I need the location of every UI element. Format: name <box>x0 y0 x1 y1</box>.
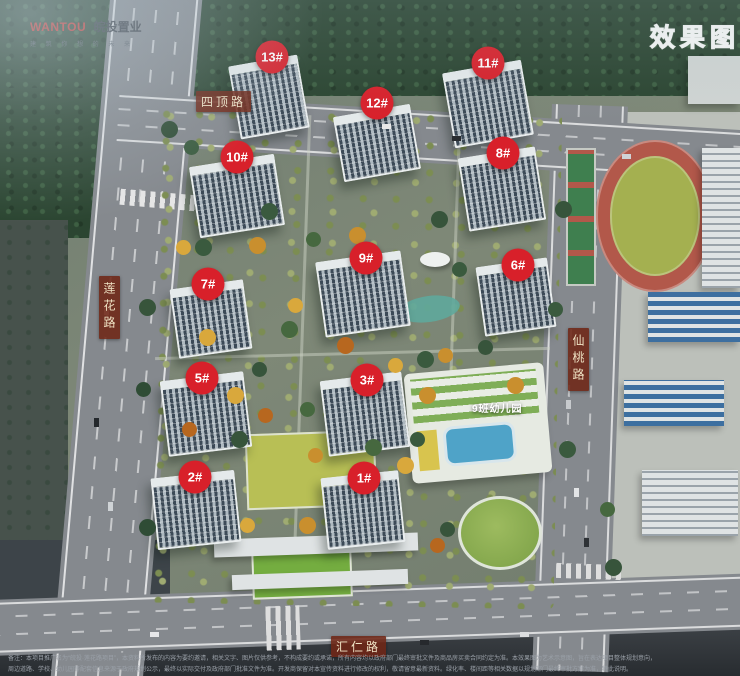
building-marker-10: 10# <box>221 141 254 174</box>
kindergarten-building <box>403 362 552 484</box>
disclaimer-line-2: 周边道路、学校、幼儿园等配套信息来源于政府规划公示，最终以实际交付及政府部门批准… <box>8 664 734 673</box>
disclaimer-line-1: 备注：本项目推广名为“皖投·莲花路项目”，本资料所发布的内容为要约邀请，相关文字… <box>8 653 734 662</box>
crosswalk <box>265 605 301 650</box>
logo-wantou-cn: 皖投置业 <box>94 20 142 34</box>
round-green-hill <box>458 496 542 570</box>
building-marker-12: 12# <box>361 87 394 120</box>
white-canopy <box>420 252 450 267</box>
cars-vertical-roads <box>96 240 101 249</box>
basketball-courts <box>566 148 596 286</box>
solar-roof-building <box>648 292 740 342</box>
campus-building <box>642 470 738 536</box>
building-marker-13: 13# <box>256 41 289 74</box>
developer-logo: WANTOU 皖投置业 建 筑 你 想 的 未 来 <box>30 18 142 48</box>
building-marker-1: 1# <box>348 462 381 495</box>
building-marker-5: 5# <box>186 362 219 395</box>
building-marker-9: 9# <box>350 242 383 275</box>
cars-horizontal-roads <box>300 110 309 115</box>
kindergarten-yellow-block <box>416 430 439 472</box>
building-marker-3: 3# <box>351 364 384 397</box>
school-building <box>702 148 740 288</box>
building-marker-2: 2# <box>179 461 212 494</box>
logo-wantou-en: WANTOU <box>30 20 86 34</box>
running-track <box>596 140 714 292</box>
solar-roof-building <box>624 380 724 426</box>
road-label-siding: 四顶路 <box>196 91 251 112</box>
road-label-lianhua: 莲花路 <box>99 276 120 339</box>
logo-tagline: 建 筑 你 想 的 未 来 <box>30 39 142 48</box>
left-city-block <box>0 220 68 550</box>
logo-text-row: WANTOU 皖投置业 <box>30 18 142 36</box>
top-right-building <box>688 56 740 104</box>
kindergarten-roof-stripes <box>410 369 539 424</box>
building-marker-7: 7# <box>192 268 225 301</box>
aerial-rendering-scene: 四顶路 莲花路 仙桃路 汇仁路 9班幼儿园 13#12#11#10#8#9#7#… <box>0 0 740 676</box>
building-marker-11: 11# <box>472 47 505 80</box>
crosswalk <box>556 563 622 580</box>
kindergarten-pool <box>442 421 517 467</box>
building-marker-6: 6# <box>502 249 535 282</box>
building-marker-8: 8# <box>487 137 520 170</box>
track-infield <box>610 156 700 276</box>
autumn-trees-layer <box>0 0 15 15</box>
kindergarten-label: 9班幼儿园 <box>472 400 523 415</box>
rendering-tag: 效果图 <box>650 18 740 54</box>
road-label-xiantao: 仙桃路 <box>568 328 589 391</box>
